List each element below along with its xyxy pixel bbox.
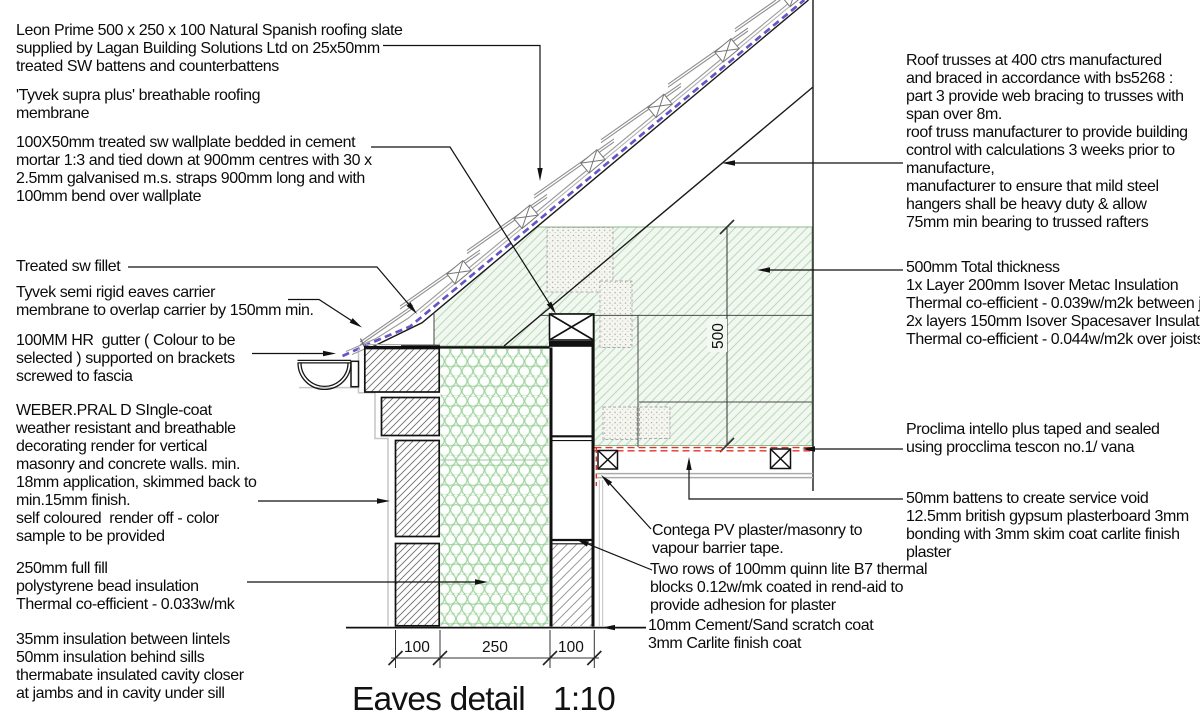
svg-text:500: 500 <box>710 323 727 349</box>
